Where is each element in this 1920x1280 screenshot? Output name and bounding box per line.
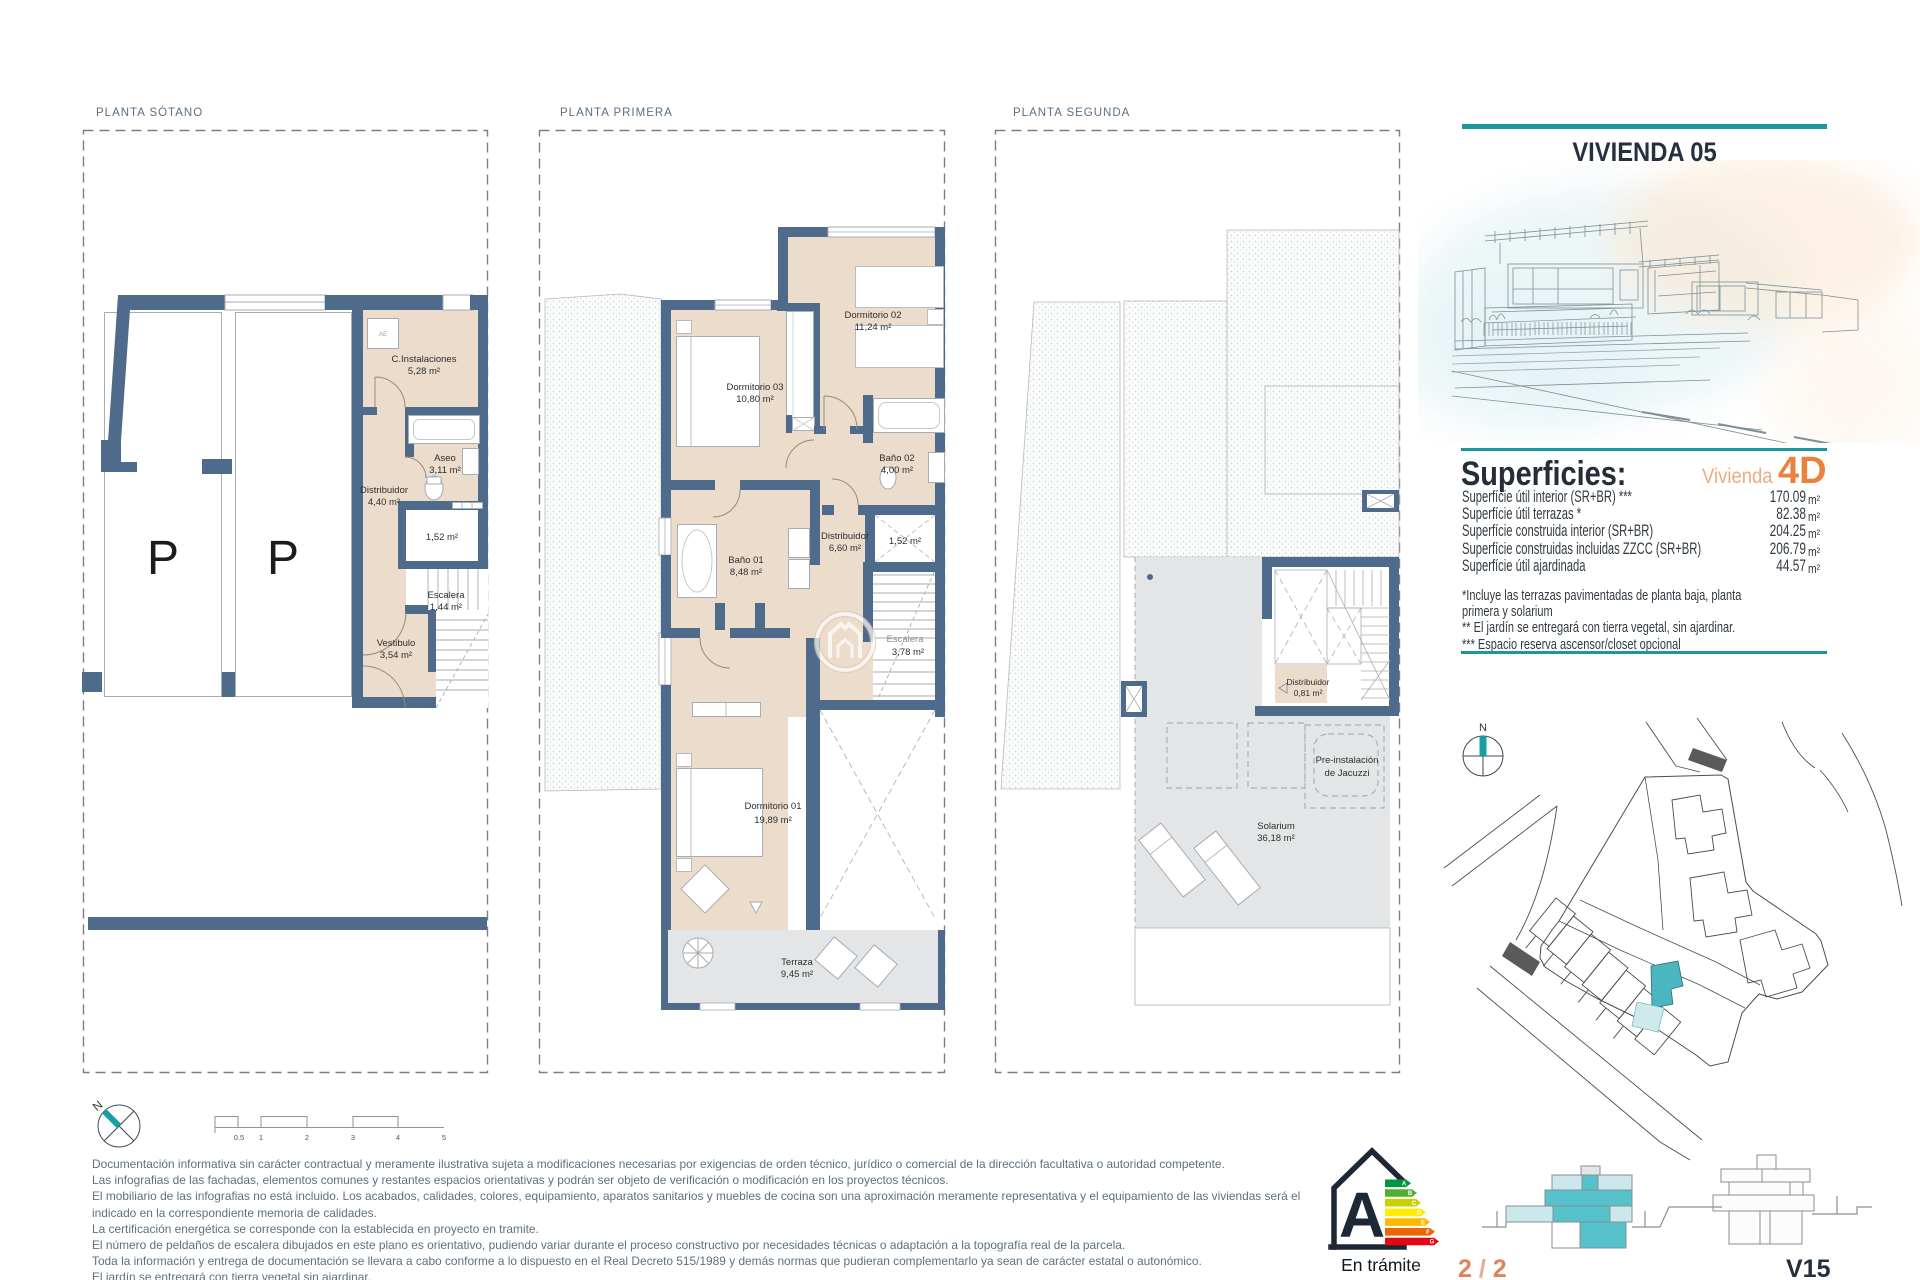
svg-text:3: 3 — [351, 1133, 355, 1142]
svg-text:G: G — [1430, 1240, 1435, 1246]
svg-text:1: 1 — [259, 1133, 263, 1142]
svg-text:E: E — [1421, 1220, 1425, 1226]
svg-text:0.5: 0.5 — [234, 1133, 244, 1142]
svg-text:En trámite: En trámite — [1341, 1255, 1421, 1275]
svg-text:5: 5 — [442, 1133, 446, 1142]
svg-text:4: 4 — [396, 1133, 400, 1142]
svg-text:F: F — [1426, 1230, 1430, 1236]
svg-text:C: C — [1412, 1201, 1417, 1207]
svg-text:N: N — [90, 1098, 106, 1114]
svg-text:2: 2 — [305, 1133, 309, 1142]
svg-text:A: A — [1339, 1179, 1385, 1251]
svg-text:D: D — [1417, 1211, 1422, 1217]
svg-text:B: B — [1408, 1191, 1413, 1197]
svg-text:A: A — [1402, 1182, 1407, 1188]
